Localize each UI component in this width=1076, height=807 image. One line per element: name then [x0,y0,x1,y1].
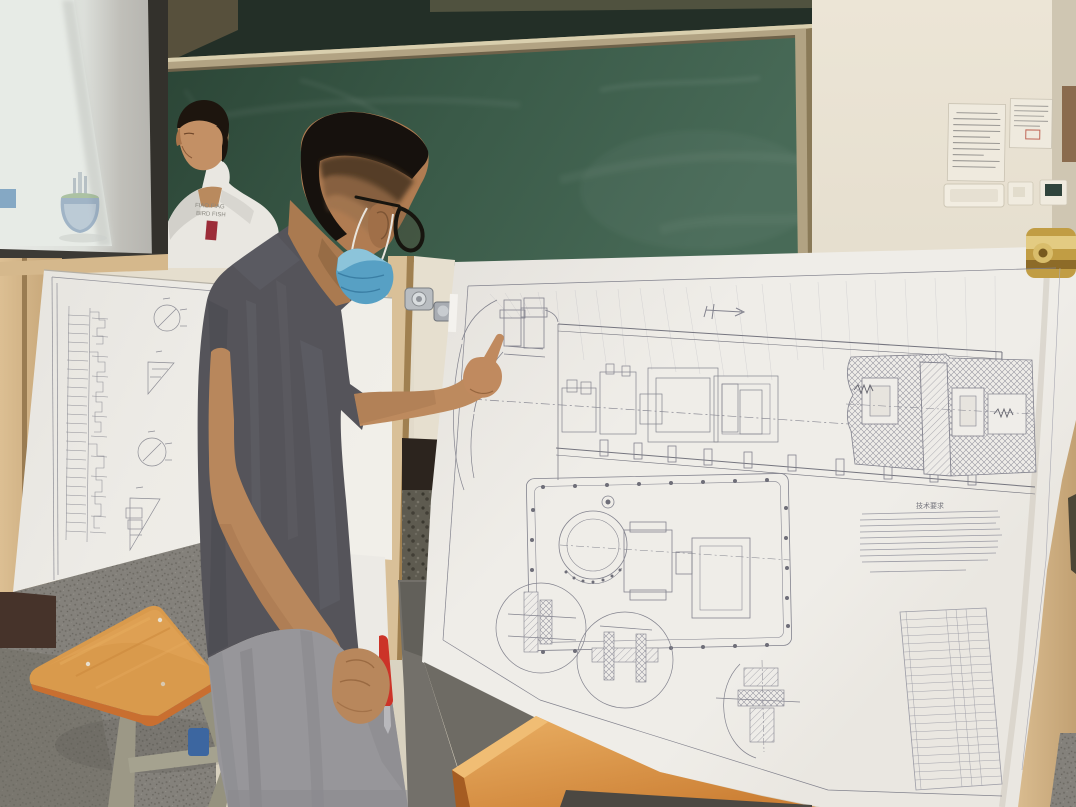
svg-text:技术要求: 技术要求 [916,501,944,510]
